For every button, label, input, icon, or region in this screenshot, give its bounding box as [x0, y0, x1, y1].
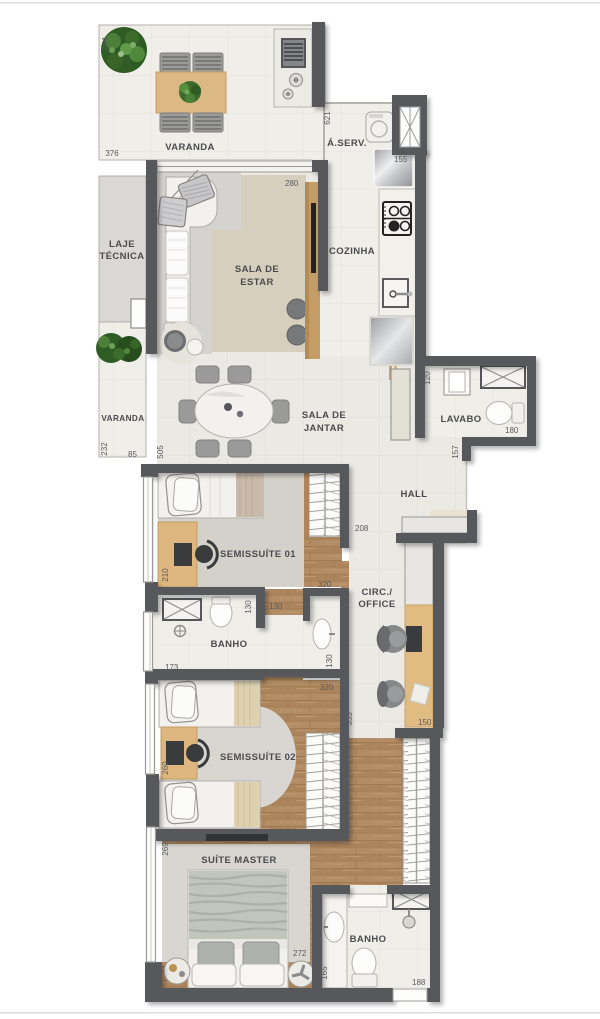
svg-text:LAJE: LAJE — [109, 239, 135, 250]
svg-text:BANHO: BANHO — [211, 639, 248, 650]
svg-text:JANTAR: JANTAR — [304, 423, 344, 434]
svg-text:505: 505 — [156, 445, 165, 459]
svg-text:621: 621 — [323, 111, 332, 125]
svg-text:210: 210 — [161, 568, 170, 582]
svg-text:208: 208 — [355, 524, 369, 533]
svg-text:SALA DE: SALA DE — [302, 410, 346, 421]
svg-text:260: 260 — [161, 761, 170, 775]
svg-text:280: 280 — [285, 179, 299, 188]
svg-text:SALA DE: SALA DE — [235, 264, 279, 275]
svg-text:Á.SERV.: Á.SERV. — [327, 138, 367, 149]
svg-text:130: 130 — [244, 600, 253, 614]
svg-text:VARANDA: VARANDA — [101, 414, 144, 423]
svg-text:232: 232 — [100, 442, 109, 456]
svg-text:157: 157 — [451, 445, 460, 459]
svg-text:120: 120 — [423, 371, 432, 385]
svg-text:LAVABO: LAVABO — [440, 414, 481, 425]
svg-text:173: 173 — [165, 663, 179, 672]
svg-text:320: 320 — [320, 683, 334, 692]
svg-text:130: 130 — [325, 654, 334, 668]
svg-text:272: 272 — [293, 949, 307, 958]
svg-text:BANHO: BANHO — [350, 934, 387, 945]
svg-text:376: 376 — [105, 149, 119, 158]
svg-text:85: 85 — [128, 450, 137, 459]
svg-text:260: 260 — [339, 741, 348, 755]
svg-text:269: 269 — [161, 842, 170, 856]
svg-text:SEMISSUÍTE 02: SEMISSUÍTE 02 — [220, 752, 296, 763]
svg-text:320: 320 — [318, 580, 332, 589]
svg-text:OFFICE: OFFICE — [358, 599, 395, 610]
svg-text:333: 333 — [345, 712, 354, 726]
svg-text:244: 244 — [101, 37, 110, 51]
svg-text:165: 165 — [320, 966, 329, 980]
svg-text:SEMISSUÍTE 01: SEMISSUÍTE 01 — [220, 549, 296, 560]
svg-text:HALL: HALL — [401, 489, 428, 500]
svg-text:188: 188 — [412, 978, 426, 987]
svg-text:TÉCNICA: TÉCNICA — [99, 251, 144, 262]
svg-text:ESTAR: ESTAR — [240, 277, 274, 288]
svg-text:155: 155 — [394, 155, 408, 164]
svg-text:180: 180 — [505, 426, 519, 435]
svg-text:VARANDA: VARANDA — [165, 142, 215, 153]
svg-text:CIRC./: CIRC./ — [362, 587, 393, 598]
svg-text:150: 150 — [418, 718, 432, 727]
svg-text:COZINHA: COZINHA — [329, 246, 375, 257]
svg-text:130: 130 — [269, 602, 283, 611]
svg-text:SUÍTE MASTER: SUÍTE MASTER — [201, 855, 277, 866]
